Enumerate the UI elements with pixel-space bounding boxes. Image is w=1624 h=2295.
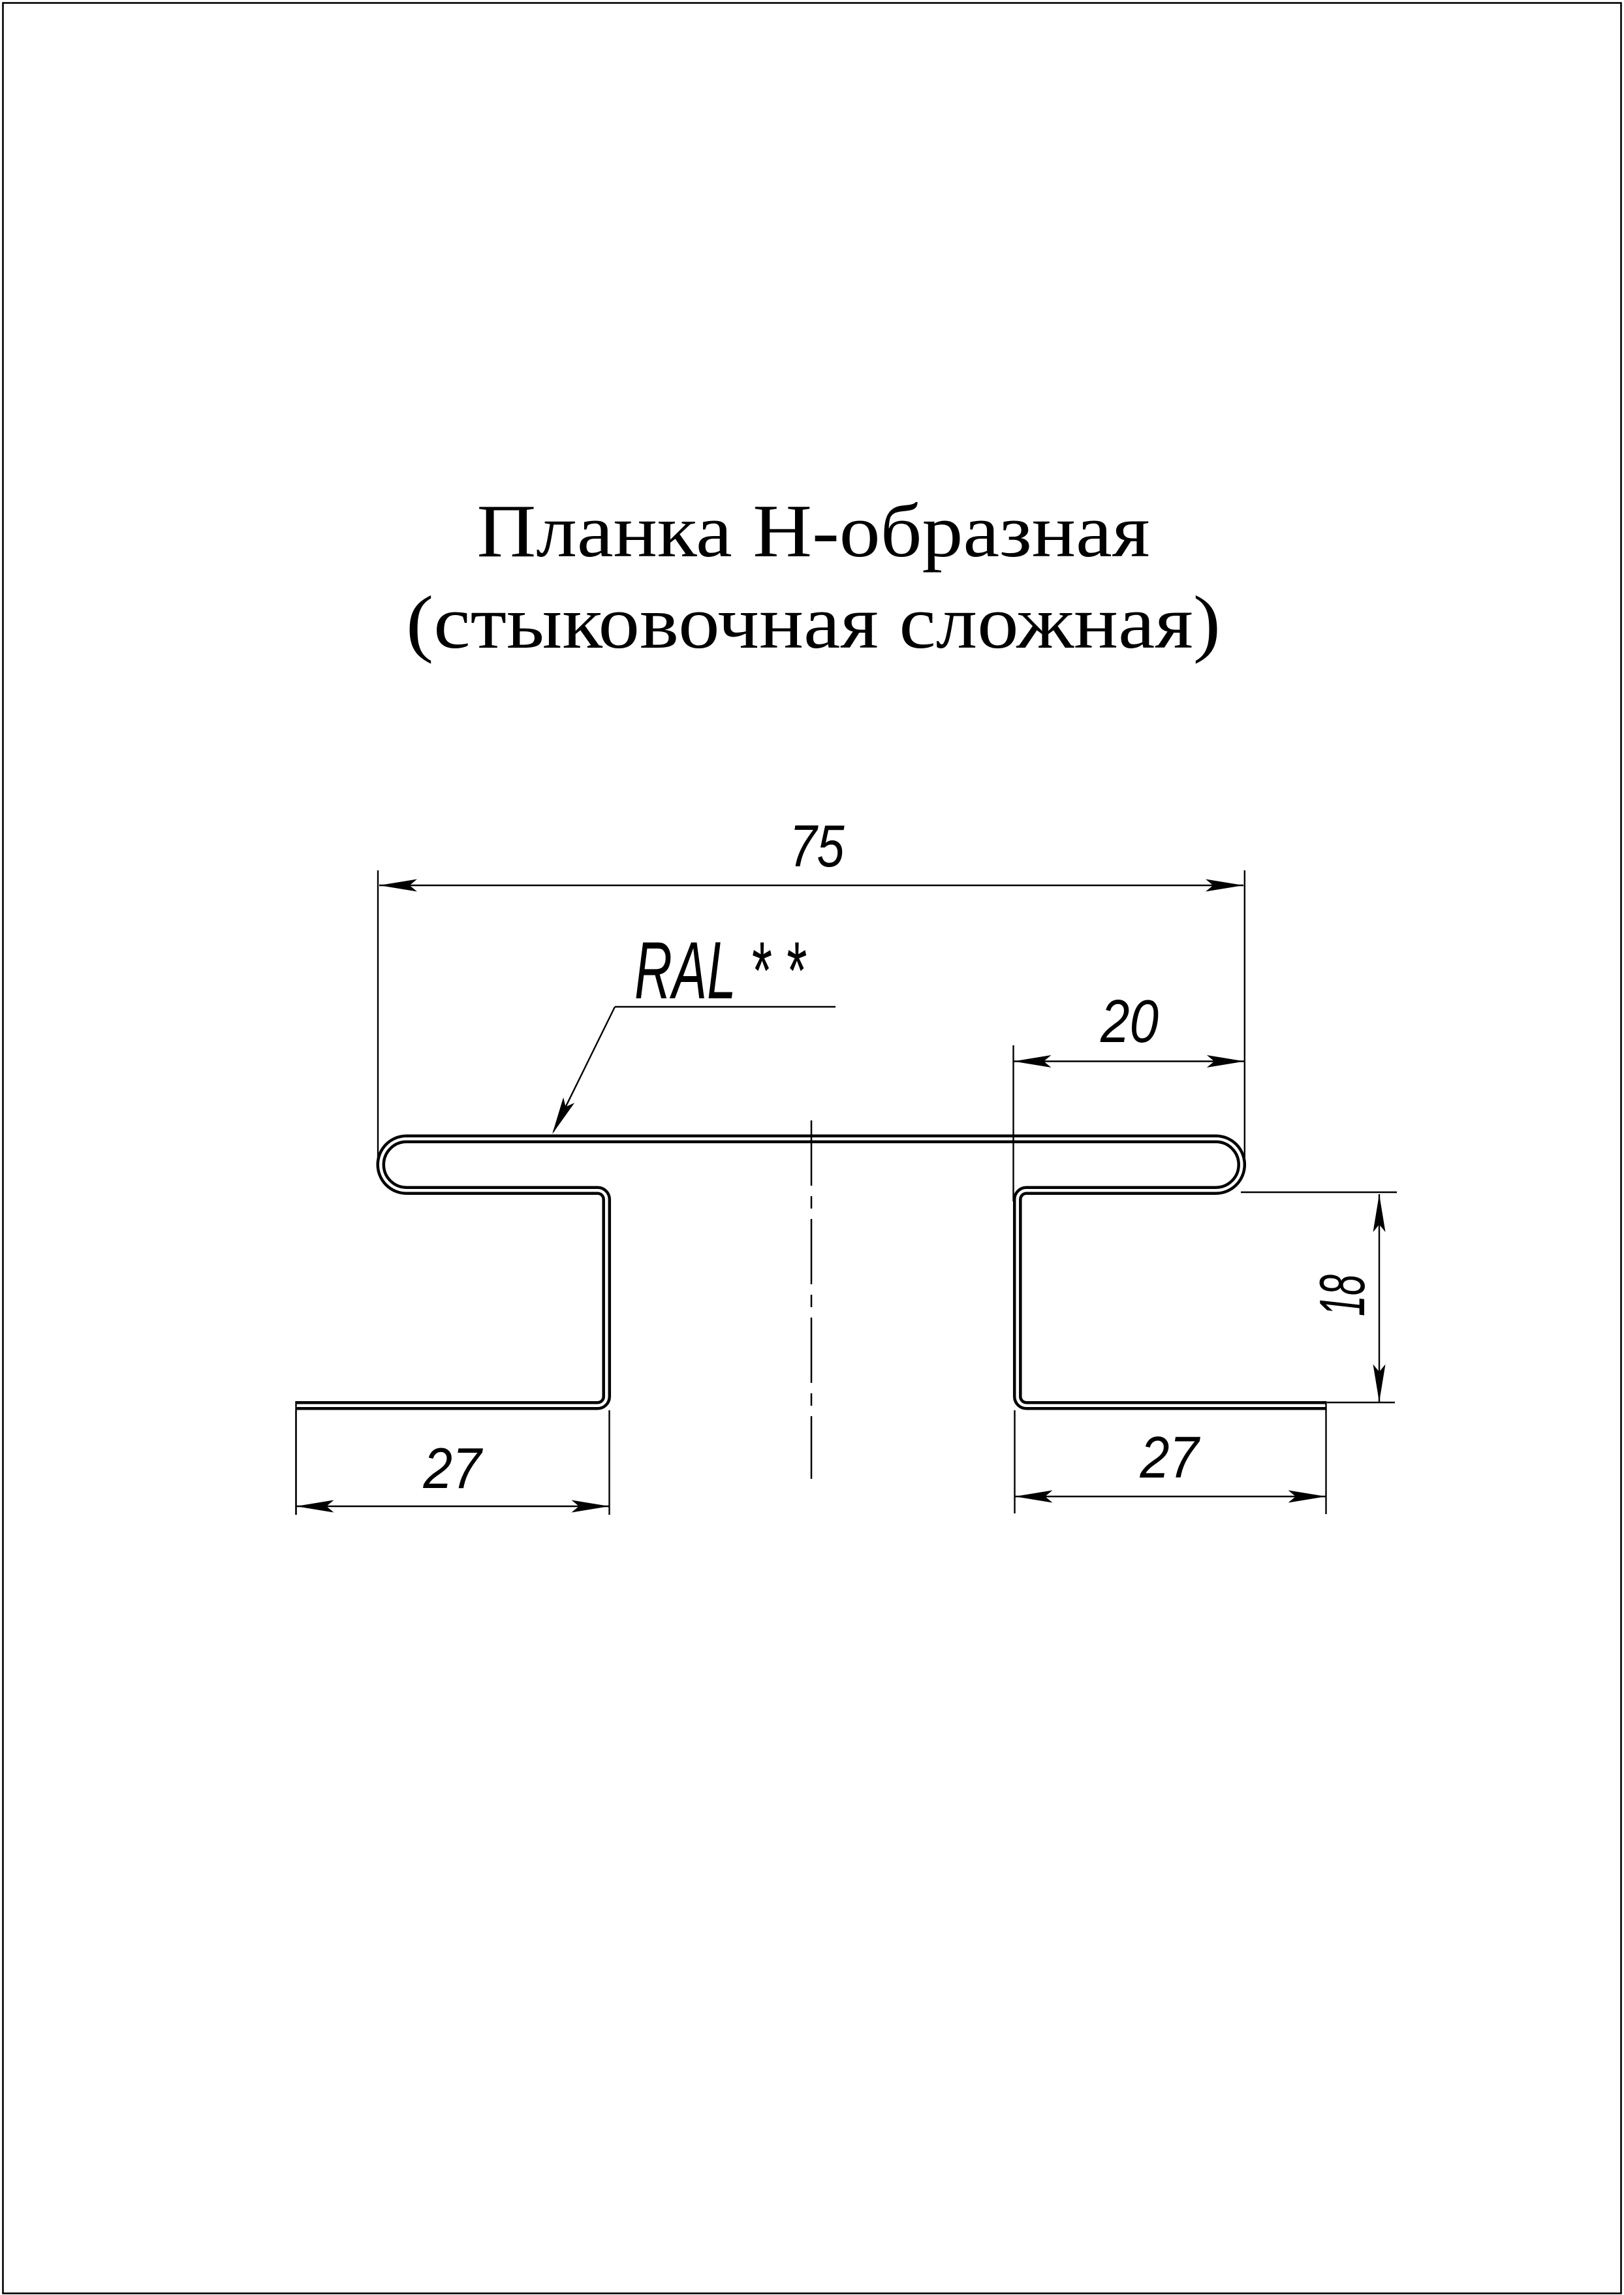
svg-text:20: 20	[1100, 987, 1159, 1055]
svg-text:Планка Н-образная: Планка Н-образная	[477, 490, 1150, 573]
svg-text:27: 27	[1140, 1425, 1201, 1491]
svg-text:(стыковочная сложная): (стыковочная сложная)	[406, 581, 1221, 665]
svg-text:27: 27	[423, 1436, 484, 1500]
svg-text:18: 18	[1306, 1274, 1378, 1316]
svg-text:75: 75	[790, 814, 845, 879]
svg-text:RAL * *: RAL * *	[634, 926, 806, 1016]
